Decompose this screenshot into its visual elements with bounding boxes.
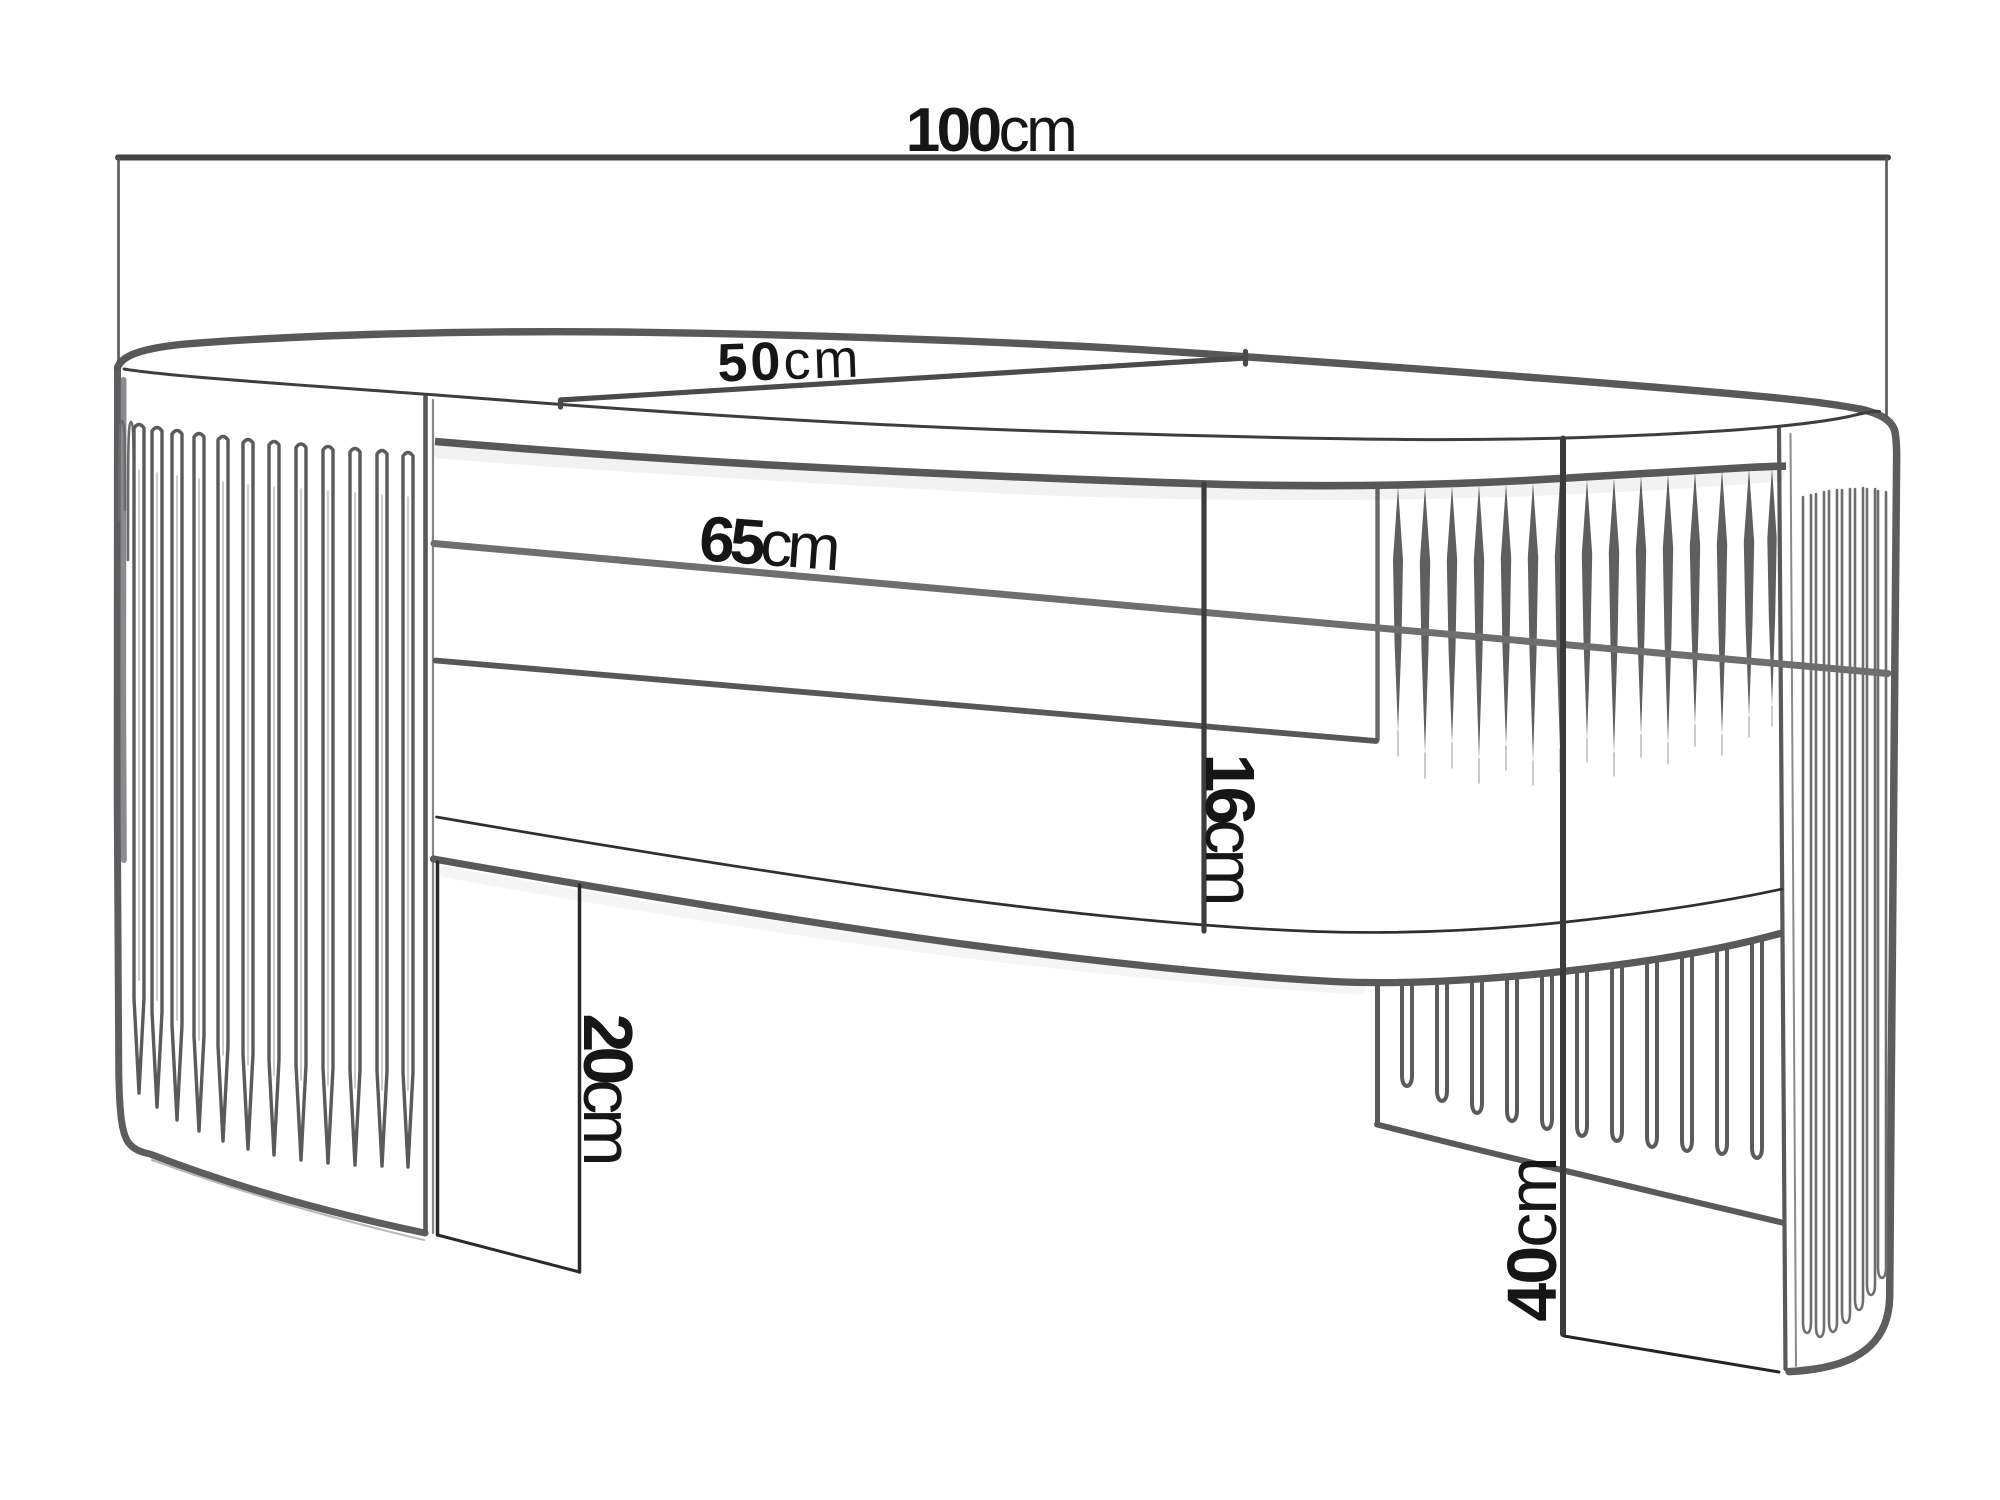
svg-text:100cm: 100cm — [906, 96, 1075, 165]
svg-text:40cm: 40cm — [1493, 1158, 1571, 1321]
svg-text:16cm: 16cm — [1191, 753, 1269, 902]
svg-text:50cm: 50cm — [716, 329, 862, 394]
svg-text:65cm: 65cm — [697, 502, 840, 584]
svg-text:20cm: 20cm — [569, 1013, 647, 1162]
